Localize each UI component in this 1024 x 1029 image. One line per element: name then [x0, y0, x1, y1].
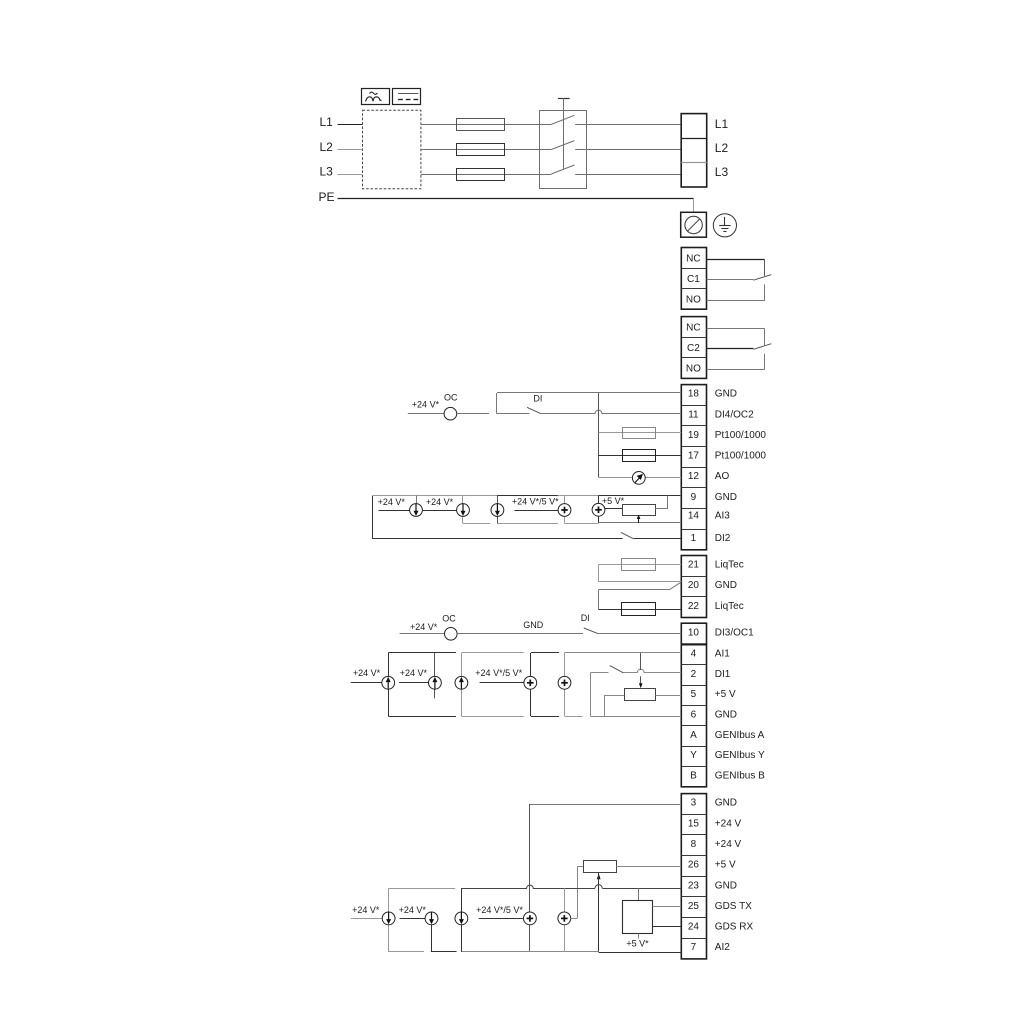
svg-text:+24 V*/5 V*: +24 V*/5 V* — [476, 905, 523, 915]
svg-text:25: 25 — [688, 901, 700, 912]
svg-text:+24 V: +24 V — [715, 839, 742, 850]
svg-text:GENIbus Y: GENIbus Y — [715, 750, 765, 761]
svg-text:+24 V*/5 V*: +24 V*/5 V* — [512, 497, 559, 507]
svg-text:12: 12 — [688, 471, 700, 482]
svg-text:L1: L1 — [320, 115, 334, 129]
svg-text:DI: DI — [533, 394, 542, 404]
svg-text:B: B — [690, 770, 697, 781]
svg-text:9: 9 — [691, 492, 697, 503]
svg-text:GENIbus A: GENIbus A — [715, 730, 765, 741]
svg-text:+24 V*: +24 V* — [426, 497, 454, 507]
svg-text:GDS TX: GDS TX — [715, 901, 752, 912]
svg-text:+24 V: +24 V — [715, 818, 742, 829]
svg-text:Pt100/1000: Pt100/1000 — [715, 430, 767, 441]
svg-text:+24 V*: +24 V* — [400, 668, 428, 678]
svg-text:21: 21 — [688, 560, 700, 571]
svg-text:C2: C2 — [687, 343, 700, 354]
svg-text:AI2: AI2 — [715, 942, 730, 953]
svg-text:L2: L2 — [715, 141, 729, 155]
svg-text:LiqTec: LiqTec — [715, 601, 744, 612]
svg-text:+5 V*: +5 V* — [626, 939, 649, 949]
svg-text:3: 3 — [691, 798, 697, 809]
svg-text:L2: L2 — [320, 140, 334, 154]
svg-text:+24 V*: +24 V* — [352, 905, 380, 915]
svg-text:C1: C1 — [687, 274, 700, 285]
svg-text:+24 V*: +24 V* — [410, 622, 438, 632]
svg-text:GND: GND — [523, 620, 544, 630]
svg-text:19: 19 — [688, 430, 700, 441]
svg-text:LiqTec: LiqTec — [715, 560, 744, 571]
svg-text:+24 V*: +24 V* — [378, 497, 406, 507]
svg-text:GENIbus B: GENIbus B — [715, 770, 765, 781]
svg-text:L3: L3 — [715, 165, 729, 179]
svg-text:Y: Y — [690, 750, 697, 761]
svg-text:26: 26 — [688, 860, 700, 871]
svg-text:1: 1 — [691, 533, 697, 544]
svg-text:DI4/OC2: DI4/OC2 — [715, 409, 754, 420]
svg-text:4: 4 — [691, 649, 697, 660]
svg-text:A: A — [690, 730, 697, 741]
svg-text:AI1: AI1 — [715, 649, 730, 660]
svg-text:5: 5 — [691, 689, 697, 700]
svg-text:L3: L3 — [320, 165, 334, 179]
svg-text:AO: AO — [715, 471, 730, 482]
svg-text:GND: GND — [715, 492, 737, 503]
svg-text:6: 6 — [691, 710, 697, 721]
svg-text:+24 V*: +24 V* — [412, 400, 440, 410]
svg-text:Pt100/1000: Pt100/1000 — [715, 451, 767, 462]
svg-text:7: 7 — [691, 942, 697, 953]
svg-text:OC: OC — [442, 614, 456, 624]
svg-text:22: 22 — [688, 601, 700, 612]
svg-text:DI2: DI2 — [715, 533, 731, 544]
svg-text:GND: GND — [715, 389, 737, 400]
svg-text:GDS RX: GDS RX — [715, 922, 754, 933]
svg-text:GND: GND — [715, 580, 737, 591]
svg-text:DI3/OC1: DI3/OC1 — [715, 627, 754, 638]
svg-text:+5 V: +5 V — [715, 860, 736, 871]
svg-text:NC: NC — [686, 253, 700, 264]
svg-text:DI1: DI1 — [715, 669, 731, 680]
svg-text:AI3: AI3 — [715, 510, 730, 521]
svg-text:17: 17 — [688, 451, 700, 462]
svg-text:+5 V: +5 V — [715, 689, 736, 700]
svg-text:GND: GND — [715, 880, 737, 891]
svg-text:NO: NO — [686, 364, 701, 375]
svg-text:2: 2 — [691, 669, 697, 680]
svg-text:20: 20 — [688, 580, 700, 591]
svg-text:GND: GND — [715, 798, 737, 809]
svg-text:GND: GND — [715, 710, 737, 721]
svg-text:+24 V*: +24 V* — [399, 905, 427, 915]
svg-text:11: 11 — [688, 409, 699, 420]
svg-text:DI: DI — [581, 613, 590, 623]
svg-text:NO: NO — [686, 295, 701, 306]
svg-text:15: 15 — [688, 818, 700, 829]
svg-text:8: 8 — [691, 839, 697, 850]
svg-text:+24 V*: +24 V* — [353, 668, 381, 678]
svg-text:NC: NC — [686, 323, 700, 334]
svg-text:PE: PE — [319, 190, 335, 204]
svg-text:10: 10 — [688, 627, 700, 638]
svg-text:OC: OC — [444, 392, 458, 402]
svg-text:18: 18 — [688, 389, 700, 400]
svg-text:L1: L1 — [715, 117, 729, 131]
svg-text:24: 24 — [688, 922, 700, 933]
svg-text:14: 14 — [688, 510, 700, 521]
svg-text:+24 V*/5 V*: +24 V*/5 V* — [475, 668, 522, 678]
svg-text:23: 23 — [688, 880, 700, 891]
svg-text:+5 V*: +5 V* — [602, 496, 625, 506]
